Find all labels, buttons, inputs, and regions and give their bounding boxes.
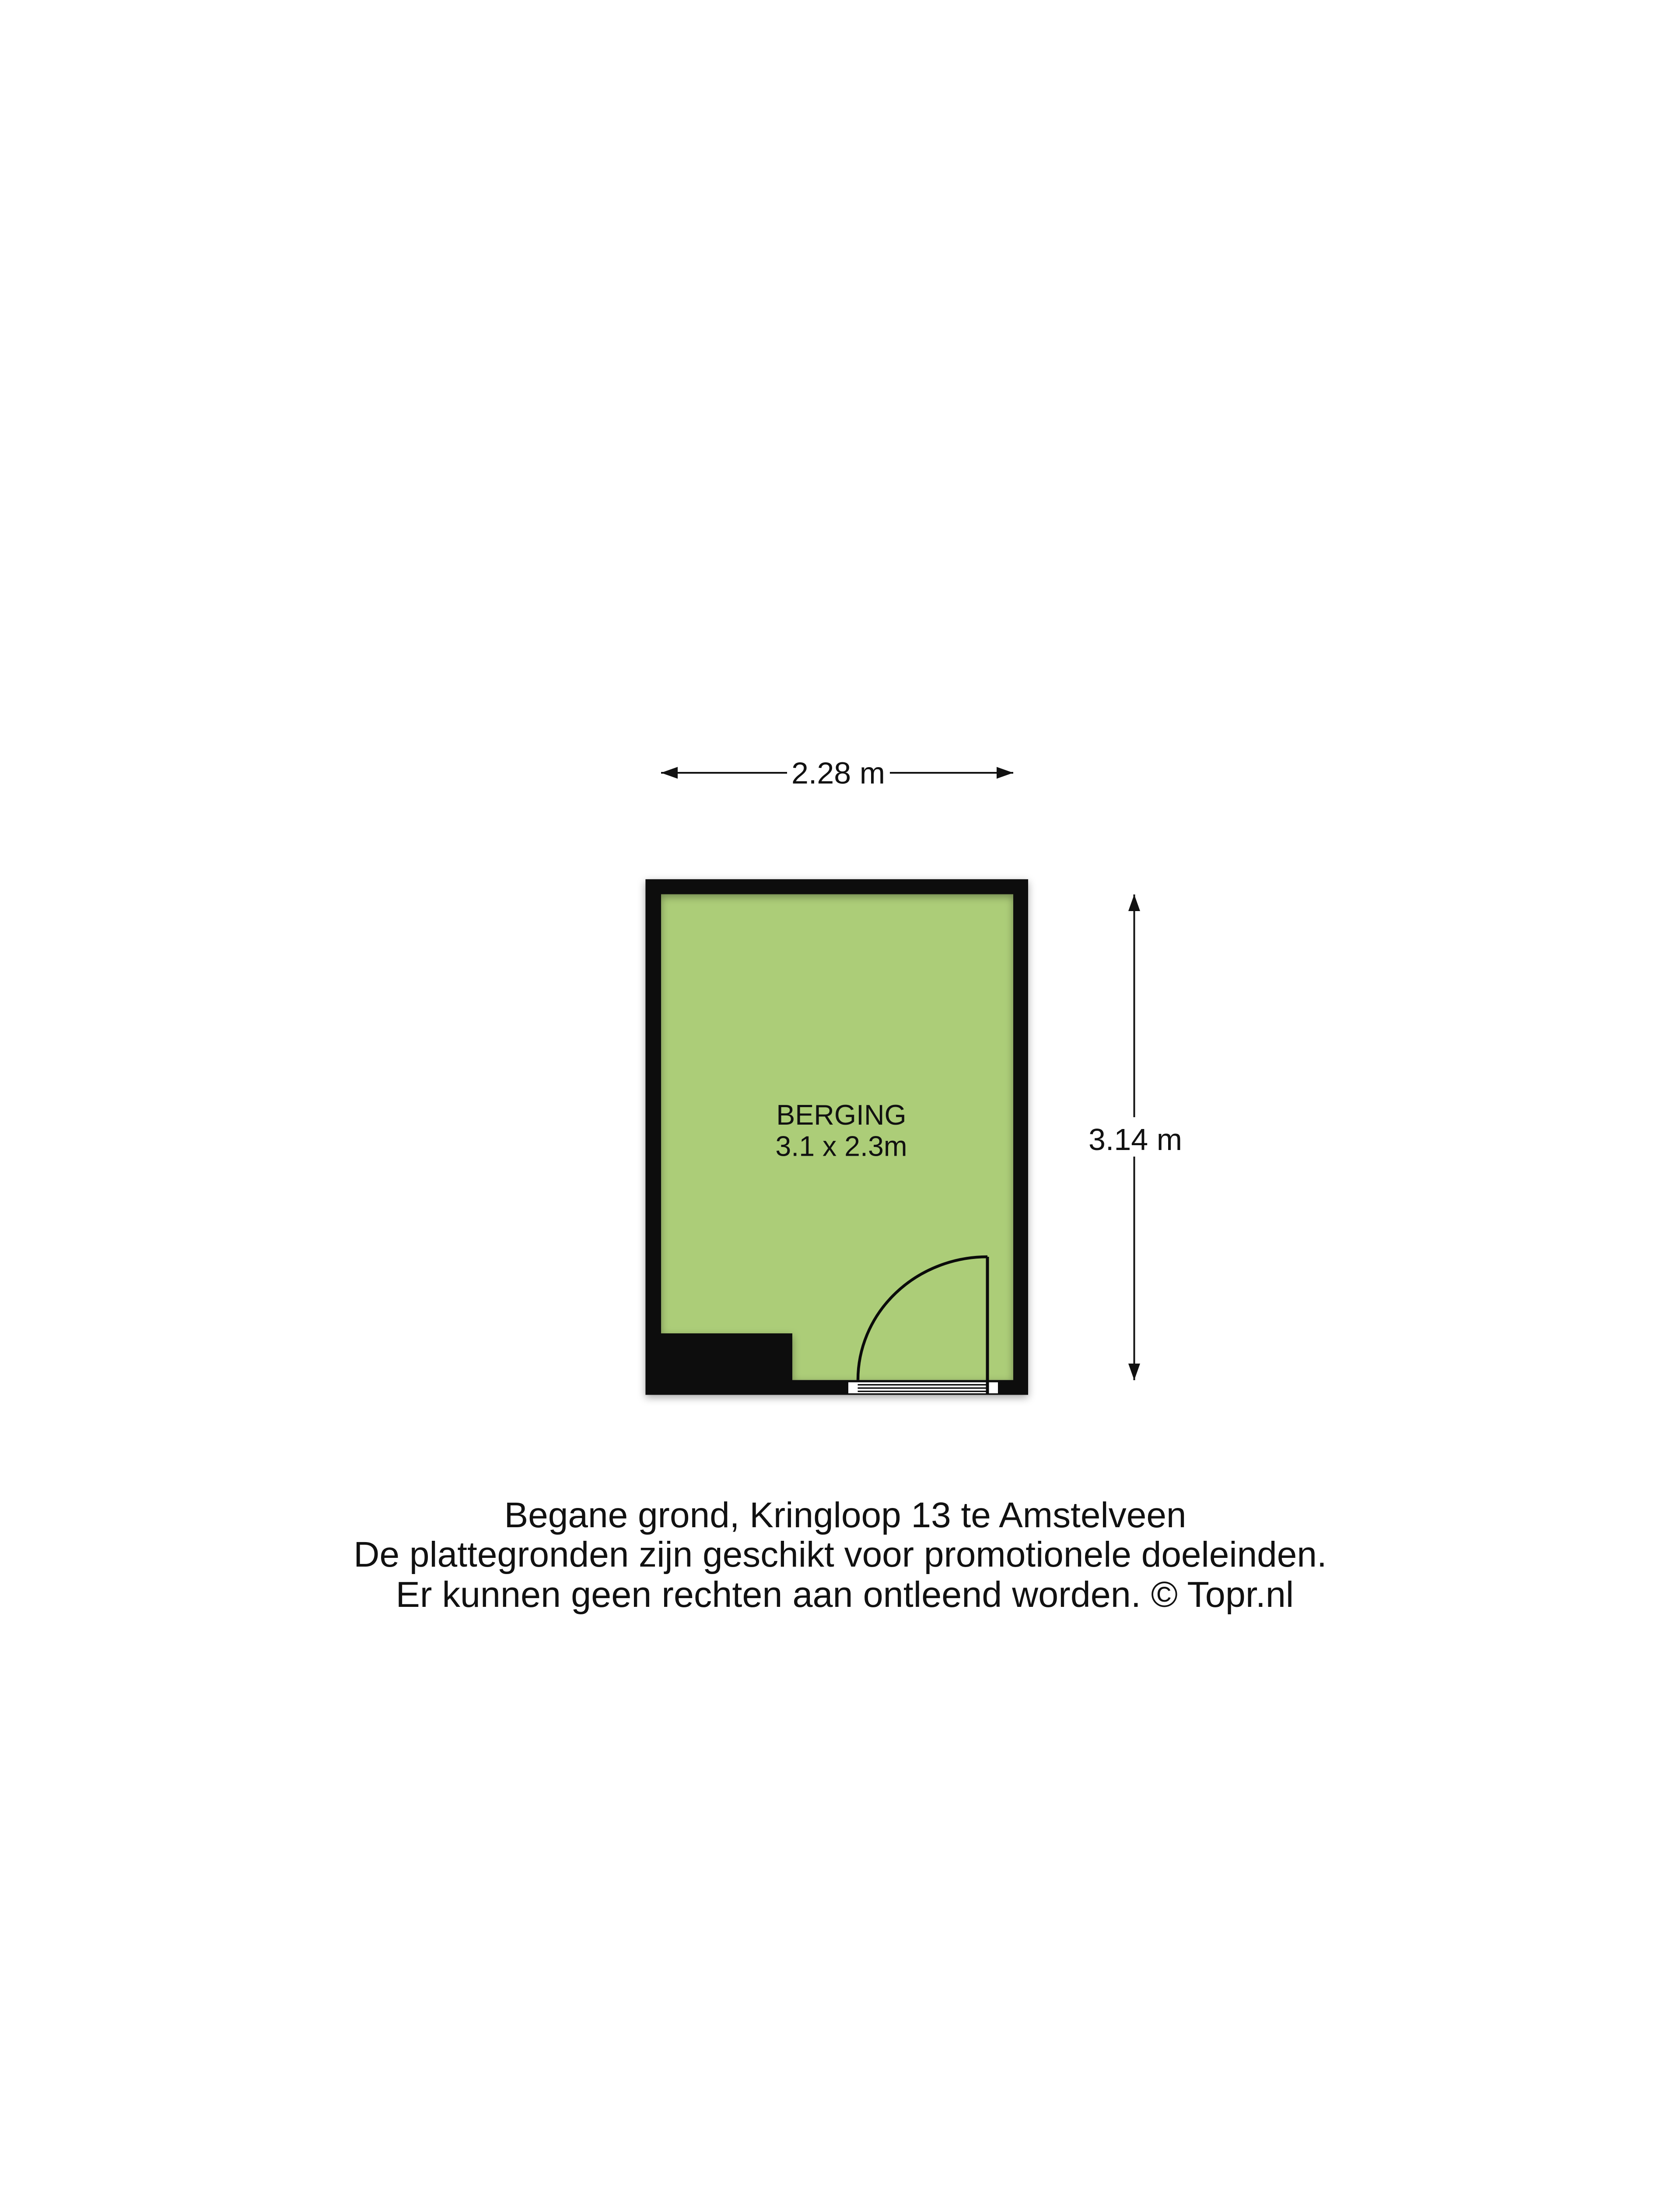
svg-text:2.28 m: 2.28 m [791, 756, 885, 790]
svg-text:BERGING: BERGING [776, 1099, 906, 1131]
svg-text:3.1 x 2.3m: 3.1 x 2.3m [775, 1131, 907, 1162]
svg-text:Er kunnen geen rechten aan ont: Er kunnen geen rechten aan ontleend word… [396, 1574, 1294, 1615]
svg-text:Begane grond, Kringloop 13 te: Begane grond, Kringloop 13 te Amstelveen [504, 1495, 1186, 1535]
svg-text:De plattegronden zijn geschikt: De plattegronden zijn geschikt voor prom… [353, 1535, 1327, 1574]
svg-text:3.14 m: 3.14 m [1088, 1122, 1182, 1157]
